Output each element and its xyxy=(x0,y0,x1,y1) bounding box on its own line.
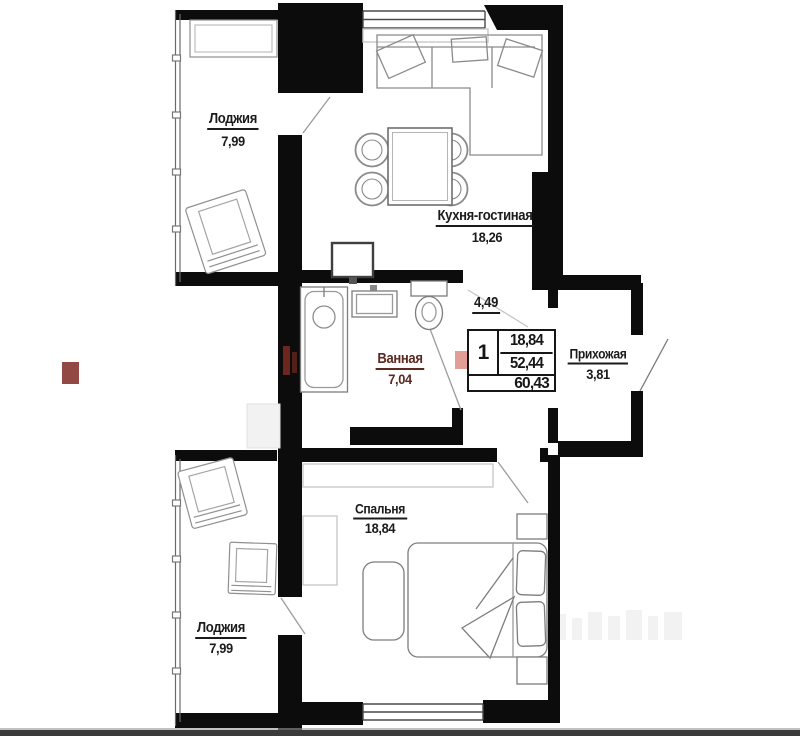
area-bathroom: 7,04 xyxy=(387,371,413,389)
floor-plan-page: Лоджия 7,99 Кухня-гостиная 18,26 Ванная … xyxy=(0,0,800,736)
sink xyxy=(352,285,397,317)
wall-hallway-bottom xyxy=(558,441,641,457)
entrance-door xyxy=(640,339,668,391)
wall-bedroom-top xyxy=(302,448,497,462)
wall-bedroom-bottom-right xyxy=(483,700,560,723)
bedroom-closet xyxy=(303,516,337,585)
area-loggia-bottom: 7,99 xyxy=(208,640,234,658)
wall-hallway-left-lower xyxy=(548,408,558,443)
wall-hallway-right-upper xyxy=(631,283,643,335)
nightstand xyxy=(517,514,547,539)
room-area: 7,99 xyxy=(221,133,245,149)
toilet xyxy=(411,281,447,330)
bathtub xyxy=(301,287,348,392)
loggia-armchair xyxy=(185,189,266,274)
bedroom-door xyxy=(498,462,528,503)
room-name: Кухня-гостиная xyxy=(436,208,535,227)
shaft-box xyxy=(247,404,280,448)
sofa-cushion xyxy=(451,37,488,62)
wall-bedroom-right xyxy=(548,455,560,702)
wall-left-spine-lower xyxy=(278,635,302,735)
area-loggia-top: 7,99 xyxy=(220,133,246,151)
wall-top-center-block xyxy=(278,3,363,93)
room-name: Лоджия xyxy=(195,620,247,639)
stamp-apartment-area: 52,44 xyxy=(500,354,552,375)
room-name: Ванная xyxy=(376,351,425,370)
wall-loggia-top-top xyxy=(175,10,278,20)
bedroom-bench xyxy=(363,562,404,640)
bedroom-wardrobe xyxy=(303,464,493,487)
watermark-mark xyxy=(626,610,642,640)
nightstand xyxy=(517,657,547,684)
bedroom-furniture xyxy=(303,464,547,684)
dining-set xyxy=(356,128,468,206)
room-area: 4,49 xyxy=(472,295,500,314)
stamp-total-area: 60,43 xyxy=(469,376,554,392)
loggia-top-glazing xyxy=(173,10,181,286)
stamp-rooms-count: 1 xyxy=(469,331,499,374)
loggia-bottom-door xyxy=(281,598,305,634)
loggia-top-door xyxy=(303,97,330,133)
sofa-cushion xyxy=(498,39,543,77)
room-area: 7,04 xyxy=(388,371,412,387)
watermark-mark xyxy=(588,612,602,640)
room-name: Спальня xyxy=(353,502,407,520)
wall-loggia-bottom-bottom xyxy=(175,713,278,728)
wall-bathroom-bottom xyxy=(350,427,463,445)
label-bathroom: Ванная xyxy=(373,350,427,370)
tv-unit xyxy=(332,243,373,284)
wall-bedroom-top-right-stub xyxy=(540,448,548,462)
bottom-strip xyxy=(0,728,800,736)
wall-bedroom-bottom-left xyxy=(302,702,363,725)
wall-hallway-left-upper xyxy=(548,288,558,308)
kitchen-furniture xyxy=(332,35,542,284)
watermark-mark xyxy=(648,616,658,640)
wall-loggia-top-bottom xyxy=(175,272,278,286)
stamp-living-area: 18,84 xyxy=(500,331,552,354)
room-area: 18,84 xyxy=(365,520,395,536)
loggia-armchair xyxy=(177,457,247,529)
room-name: Лоджия xyxy=(207,111,259,130)
area-corridor: 4,49 xyxy=(471,294,502,314)
apartment-stamp-table: 1 18,84 52,44 60,43 xyxy=(467,329,556,392)
area-bedroom: 18,84 xyxy=(363,520,396,538)
label-hallway: Прихожая xyxy=(564,346,631,365)
loggia-bottom-furniture xyxy=(177,457,276,595)
bedroom-window xyxy=(363,704,483,720)
wall-bathroom-right-stub xyxy=(452,408,463,427)
wall-kitchen-right-pilaster xyxy=(532,172,563,290)
room-area: 18,26 xyxy=(472,229,502,245)
room-area: 7,99 xyxy=(209,640,233,656)
pillow xyxy=(516,602,546,647)
watermark-mark xyxy=(664,612,682,640)
watermark-mark xyxy=(608,616,620,640)
label-loggia-bottom: Лоджия xyxy=(192,619,249,639)
tv xyxy=(332,243,373,277)
watermark-mark xyxy=(560,614,566,640)
room-name: Прихожая xyxy=(568,347,629,365)
dining-table xyxy=(388,128,452,205)
bathroom-fixtures xyxy=(301,281,448,392)
label-bedroom: Спальня xyxy=(350,501,410,520)
dining-chair xyxy=(356,134,389,167)
area-hallway: 3,81 xyxy=(585,366,611,384)
pillow xyxy=(516,551,546,596)
watermark-mark xyxy=(572,618,582,640)
label-kitchen-living: Кухня-гостиная xyxy=(430,207,539,227)
wall-top-right xyxy=(484,5,563,30)
double-bed xyxy=(408,543,547,658)
room-area: 3,81 xyxy=(586,366,610,382)
dining-chair xyxy=(356,173,389,206)
label-loggia-top: Лоджия xyxy=(204,110,261,130)
loggia-bottom-glazing xyxy=(173,455,181,726)
wall-kitchen-right xyxy=(548,28,563,172)
loggia-armchair xyxy=(228,542,277,595)
wall-hallway-top xyxy=(563,275,641,290)
area-kitchen-living: 18,26 xyxy=(470,229,503,247)
